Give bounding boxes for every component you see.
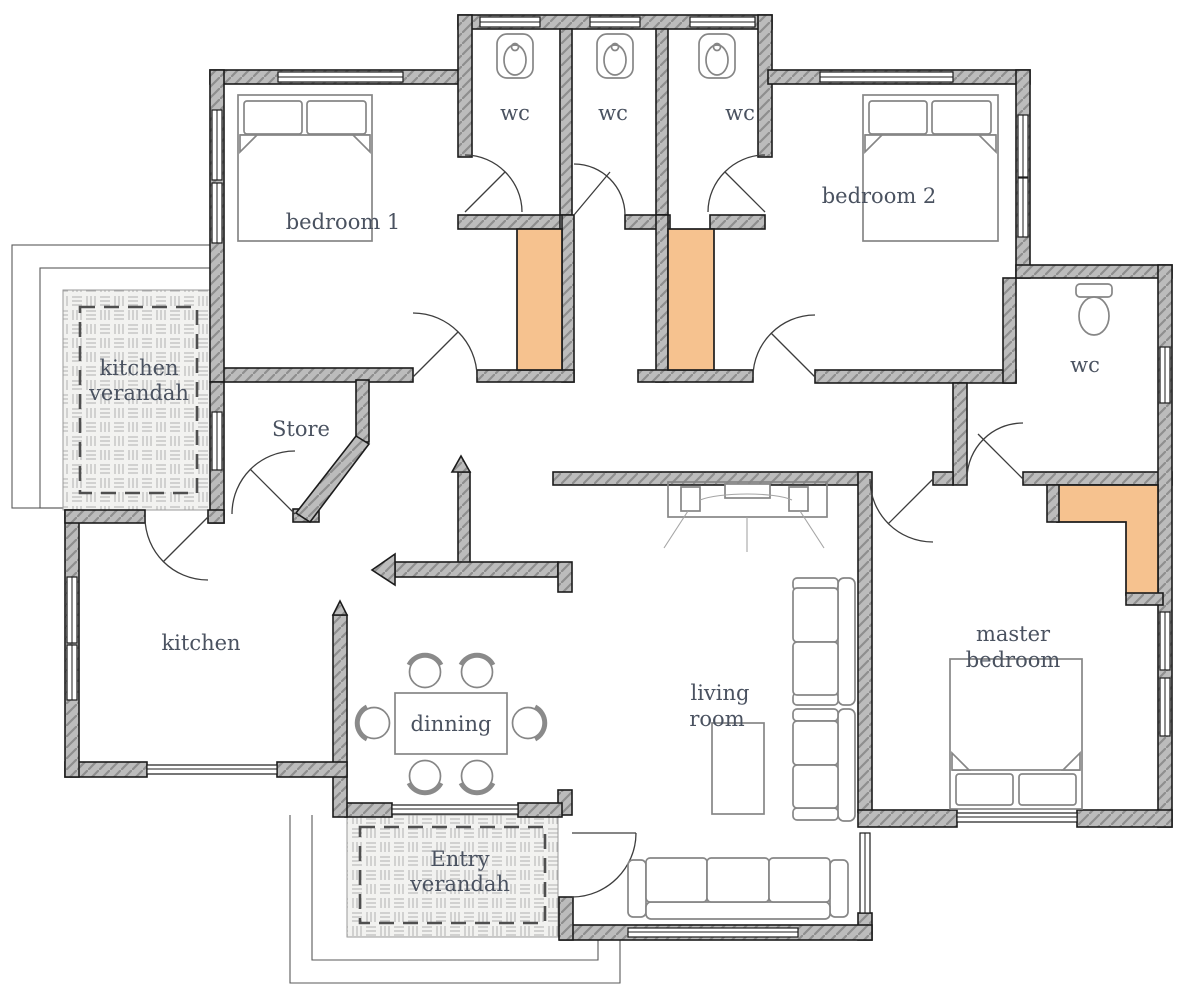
label-dining: dinning bbox=[411, 712, 492, 736]
door-master-bedroom bbox=[870, 479, 933, 542]
label-wc-2: wc bbox=[598, 101, 628, 125]
window bbox=[212, 110, 222, 180]
window bbox=[1160, 678, 1170, 736]
window bbox=[860, 833, 870, 913]
window bbox=[1018, 178, 1028, 237]
window bbox=[628, 928, 798, 937]
squat-toilet-icon bbox=[497, 34, 533, 78]
label-master-bedroom-2: bedroom bbox=[966, 648, 1061, 672]
label-entry-verandah-2: verandah bbox=[409, 872, 510, 896]
loveseat-bottom bbox=[793, 709, 855, 821]
door-wc3 bbox=[708, 155, 765, 212]
closet-right bbox=[668, 229, 714, 370]
coffee-table bbox=[712, 723, 764, 814]
floor-plan: bedroom 1 bedroom 2 wc wc wc wc kitchen … bbox=[0, 0, 1200, 998]
window bbox=[212, 183, 222, 243]
label-wc-3: wc bbox=[725, 101, 755, 125]
hall-wall-arrow-tip bbox=[372, 554, 395, 585]
label-bedroom-1: bedroom 1 bbox=[286, 210, 401, 234]
door-store bbox=[232, 451, 295, 514]
window bbox=[690, 17, 755, 27]
squat-toilet-icon bbox=[597, 34, 633, 78]
label-living-room-2: room bbox=[689, 707, 744, 731]
label-entry-verandah-1: Entry bbox=[430, 847, 489, 871]
label-bedroom-2: bedroom 2 bbox=[822, 184, 937, 208]
closets bbox=[517, 229, 1163, 605]
label-living-room-1: living bbox=[691, 681, 750, 705]
window bbox=[1018, 115, 1028, 177]
label-wc-right: wc bbox=[1070, 353, 1100, 377]
window bbox=[67, 645, 77, 700]
window bbox=[147, 765, 277, 774]
hall-wall-cap bbox=[452, 456, 470, 472]
bed-bedroom2 bbox=[863, 95, 998, 241]
label-wc-1: wc bbox=[500, 101, 530, 125]
label-kitchen-verandah-2: verandah bbox=[88, 381, 189, 405]
label-kitchen-verandah-1: kitchen bbox=[99, 356, 178, 380]
bed-master bbox=[950, 659, 1082, 809]
window bbox=[1160, 347, 1170, 403]
door-bedroom1 bbox=[413, 313, 477, 377]
window bbox=[480, 17, 540, 27]
toilet-icon bbox=[1076, 284, 1112, 335]
window bbox=[278, 72, 403, 82]
closet-master-l-shape bbox=[1057, 485, 1158, 595]
window bbox=[67, 577, 77, 643]
window bbox=[392, 805, 518, 814]
label-kitchen: kitchen bbox=[161, 631, 240, 655]
sofa-three-seat bbox=[628, 858, 848, 919]
door-wc1 bbox=[465, 155, 522, 212]
tv-unit bbox=[664, 482, 827, 552]
door-wc2 bbox=[574, 164, 625, 215]
floor-plan-page: bedroom 1 bedroom 2 wc wc wc wc kitchen … bbox=[0, 0, 1200, 998]
window bbox=[957, 813, 1077, 822]
window bbox=[820, 72, 953, 82]
closet-left bbox=[517, 229, 562, 370]
door-entry-front bbox=[572, 833, 636, 897]
doors bbox=[145, 155, 1023, 897]
door-bedroom2 bbox=[753, 315, 815, 377]
label-master-bedroom-1: master bbox=[976, 622, 1051, 646]
loveseat-top bbox=[793, 578, 855, 705]
label-store: Store bbox=[272, 417, 330, 441]
door-kitchen bbox=[145, 517, 208, 580]
dining-wall-cap bbox=[333, 601, 347, 615]
squat-toilet-icon bbox=[699, 34, 735, 78]
window bbox=[590, 17, 640, 27]
window bbox=[212, 412, 222, 470]
door-wc-right bbox=[967, 423, 1023, 479]
store-diagonal-wall bbox=[296, 436, 369, 522]
window bbox=[1160, 612, 1170, 670]
